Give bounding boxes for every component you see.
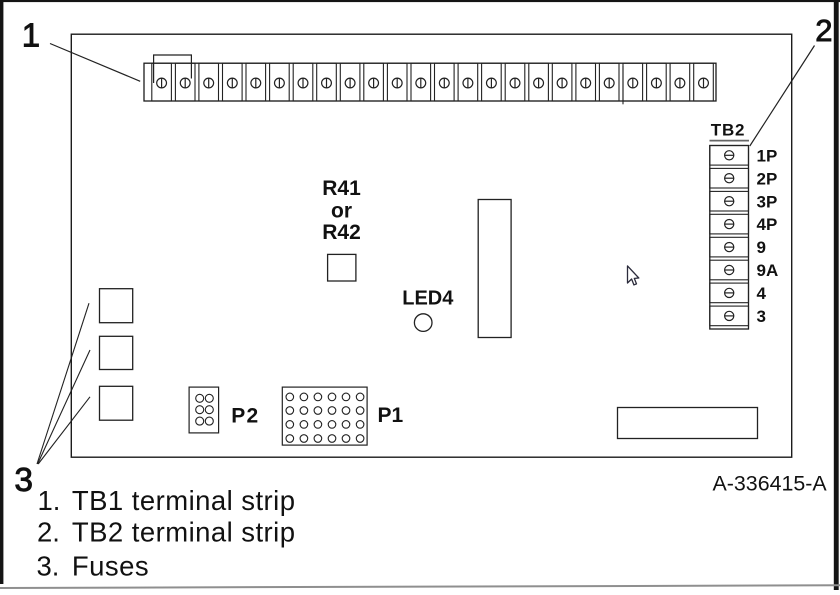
svg-text:P1: P1: [378, 404, 404, 427]
svg-text:or: or: [331, 200, 352, 223]
svg-text:3: 3: [14, 462, 33, 499]
svg-text:LED4: LED4: [402, 288, 454, 310]
svg-text:R42: R42: [322, 221, 361, 244]
svg-text:Fuses: Fuses: [72, 550, 149, 581]
svg-text:R41: R41: [322, 177, 361, 200]
svg-text:TB1 terminal strip: TB1 terminal strip: [72, 485, 296, 516]
svg-text:1.: 1.: [38, 485, 61, 516]
svg-text:2P: 2P: [757, 169, 778, 188]
svg-text:P2: P2: [231, 405, 259, 428]
svg-text:2: 2: [815, 13, 832, 48]
svg-text:3: 3: [757, 307, 766, 326]
svg-text:3.: 3.: [37, 550, 60, 581]
svg-text:1: 1: [22, 16, 40, 53]
svg-text:4P: 4P: [757, 215, 778, 234]
svg-text:TB2 terminal strip: TB2 terminal strip: [72, 517, 296, 548]
svg-text:3P: 3P: [757, 192, 778, 211]
svg-text:2.: 2.: [37, 517, 60, 548]
svg-text:1P: 1P: [757, 146, 778, 165]
svg-text:9: 9: [757, 238, 766, 257]
svg-text:4: 4: [757, 284, 767, 303]
svg-text:TB2: TB2: [711, 121, 746, 140]
svg-text:A-336415-A: A-336415-A: [713, 472, 828, 496]
svg-text:9A: 9A: [757, 261, 779, 280]
